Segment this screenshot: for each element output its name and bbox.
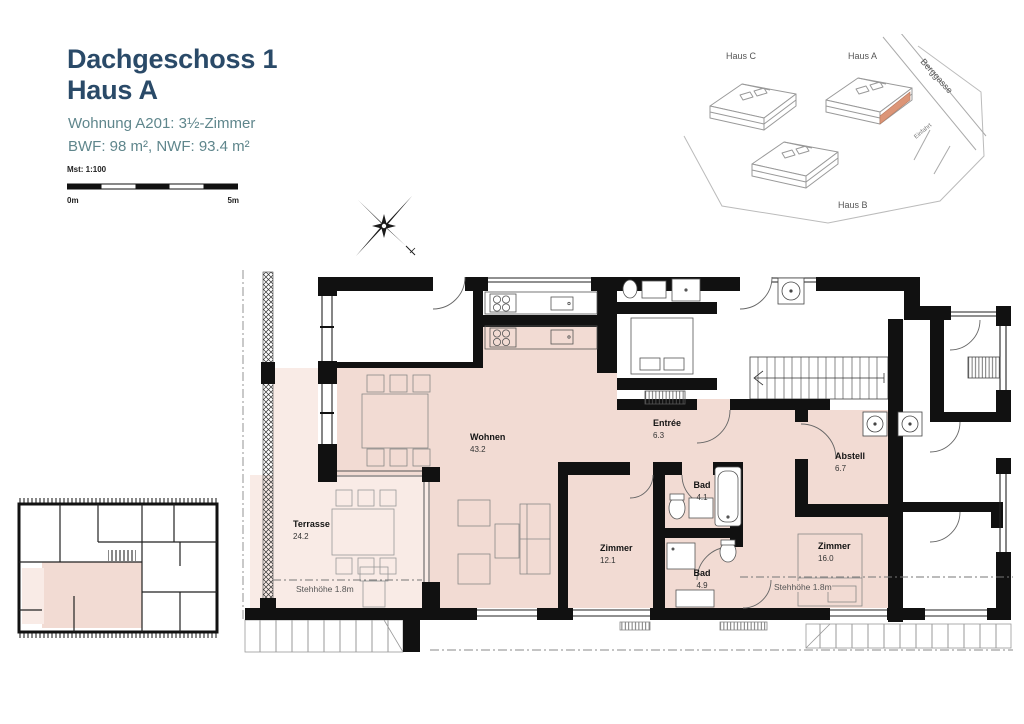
roof-overhang-hatch [245,620,1011,652]
svg-text:Terrasse: Terrasse [293,519,330,529]
svg-text:Bad: Bad [693,568,710,578]
svg-text:43.2: 43.2 [470,445,486,454]
scale-start: 0m [67,196,79,205]
page-title: Dachgeschoss 1 Haus A [67,44,277,106]
label-haus-a: Haus A [848,51,877,61]
svg-text:6.7: 6.7 [835,464,847,473]
svg-text:16.0: 16.0 [818,554,834,563]
svg-text:Abstell: Abstell [835,451,865,461]
house-b [752,142,838,188]
key-plan-stairs [108,550,136,561]
stehhoehe-terrasse: Stehhöhe 1.8m [296,584,354,594]
label-haus-b: Haus B [838,200,868,210]
label-einfahrt: Einfahrt [913,122,933,140]
staircase [750,357,888,399]
title-line-2: Haus A [67,75,277,106]
label-berggasse: Berggasse [919,57,955,96]
key-plan [14,496,226,642]
svg-text:Bad: Bad [693,480,710,490]
svg-text:Zimmer: Zimmer [818,541,851,551]
house-c [710,84,796,130]
svg-text:Wohnen: Wohnen [470,432,505,442]
apartment-subtitle: Wohnung A201: 3½-Zimmer BWF: 98 m², NWF:… [68,112,255,158]
svg-text:24.2: 24.2 [293,532,309,541]
apartment-type: Wohnung A201: 3½-Zimmer [68,112,255,135]
scale-bar: Mst: 1:100 0m 5m [67,165,239,205]
site-plan: Haus C Haus A Haus B Berggasse Einfahrt [678,34,1010,230]
svg-text:Zimmer: Zimmer [600,543,633,553]
stehhoehe-zimmer: Stehhöhe 1.8m [774,582,832,592]
scale-end: 5m [227,196,239,205]
svg-text:12.1: 12.1 [600,556,616,565]
house-a [826,78,912,124]
title-line-1: Dachgeschoss 1 [67,44,277,75]
svg-text:6.3: 6.3 [653,431,665,440]
main-floor-plan: Wohnen 43.2 Entrée 6.3 Abstell 6.7 Zimme… [236,262,1016,657]
scale-label: Mst: 1:100 [67,165,239,174]
north-arrow-icon [348,190,420,262]
key-plan-highlight [22,562,142,628]
svg-text:Entrée: Entrée [653,418,681,428]
scale-bar-graphic [67,183,239,190]
svg-text:4.9: 4.9 [696,581,708,590]
svg-text:4.1: 4.1 [696,493,708,502]
apartment-areas: BWF: 98 m², NWF: 93.4 m² [68,135,255,158]
label-haus-c: Haus C [726,51,757,61]
